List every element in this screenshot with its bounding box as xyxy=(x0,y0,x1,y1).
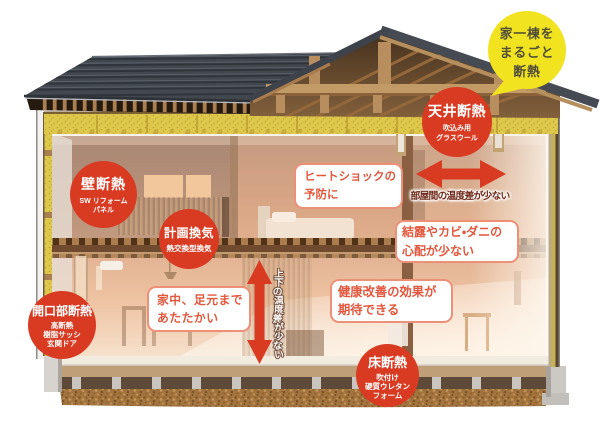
svg-text:上下の 温度差 が少な: 上下の 温度差 が少な い xyxy=(273,268,286,360)
